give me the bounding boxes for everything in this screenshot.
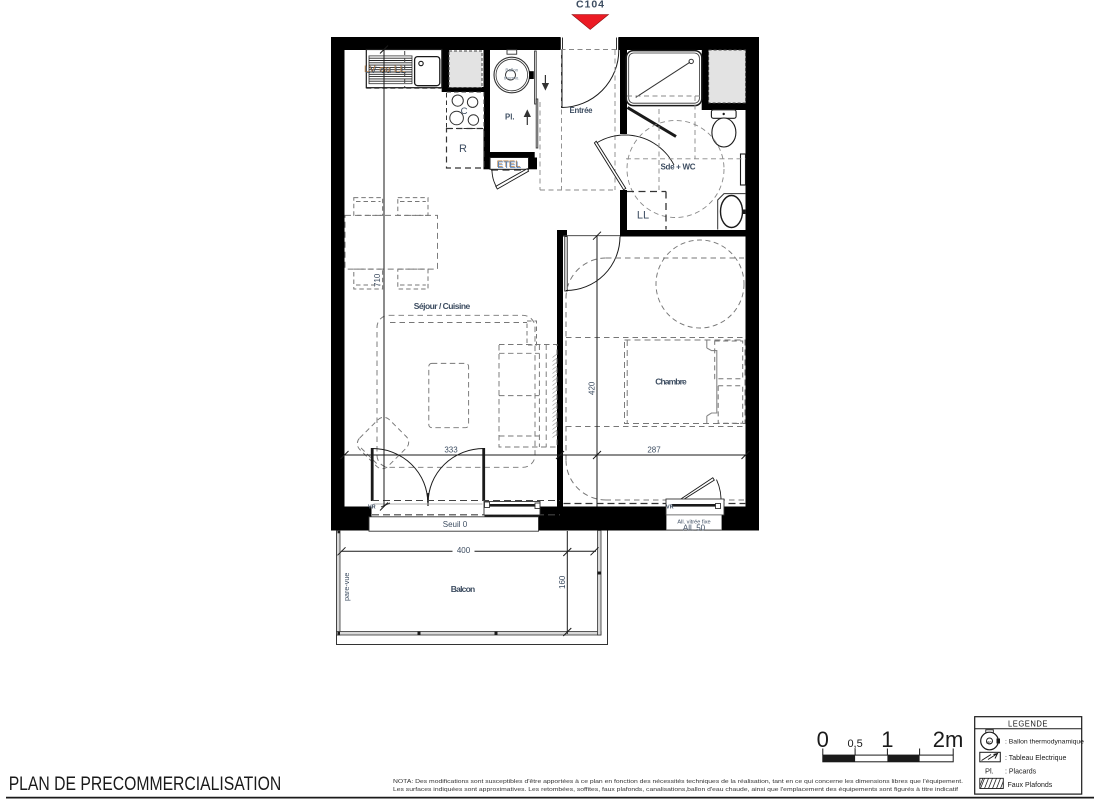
svg-text:pare-vue: pare-vue: [342, 573, 351, 601]
svg-text:Entrée: Entrée: [570, 106, 594, 115]
svg-text:: Placards: : Placards: [1005, 769, 1037, 776]
svg-text:C104: C104: [576, 0, 604, 11]
svg-text:1: 1: [881, 727, 893, 752]
svg-text:Faux Plafonds: Faux Plafonds: [1008, 782, 1053, 789]
svg-text:NOTA: Des modifications sont: NOTA: Des modifications sont susceptible…: [393, 779, 964, 785]
svg-text:2m: 2m: [933, 727, 964, 752]
svg-text:LL: LL: [637, 210, 649, 222]
svg-text:Sde + WC: Sde + WC: [661, 163, 696, 172]
svg-text:LV ou LL: LV ou LL: [365, 65, 406, 76]
svg-text:287: 287: [647, 446, 661, 455]
svg-text:160: 160: [558, 575, 567, 589]
svg-text:thermo.: thermo.: [504, 76, 520, 81]
svg-text:Chambre: Chambre: [655, 377, 687, 387]
svg-text:Balcon: Balcon: [451, 584, 476, 594]
svg-text:333: 333: [444, 446, 458, 455]
svg-text:: Tableau Electrique: : Tableau Electrique: [1005, 755, 1066, 762]
svg-text:VR: VR: [368, 505, 376, 511]
svg-text:PLAN DE PRECOMMERCIALISATION: PLAN DE PRECOMMERCIALISATION: [9, 774, 282, 795]
svg-text:0: 0: [817, 727, 829, 752]
svg-text:All. 50: All. 50: [683, 524, 706, 533]
svg-text:ETEL: ETEL: [497, 160, 521, 171]
svg-text:C: C: [461, 106, 468, 117]
svg-text:LEGENDE: LEGENDE: [1008, 718, 1048, 728]
svg-text:710: 710: [373, 273, 382, 287]
svg-text:tac: tac: [986, 740, 992, 745]
svg-text:Seuil 0: Seuil 0: [443, 520, 468, 529]
svg-text:Ballon: Ballon: [505, 68, 518, 73]
svg-text:Séjour / Cuisine: Séjour / Cuisine: [414, 301, 471, 311]
svg-text:0,5: 0,5: [847, 738, 862, 750]
svg-text:VR: VR: [666, 505, 674, 511]
svg-text:: Ballon thermodynamique: : Ballon thermodynamique: [1005, 739, 1084, 746]
svg-text:400: 400: [457, 546, 471, 555]
svg-text:Pl.: Pl.: [985, 767, 994, 776]
svg-text:R: R: [459, 143, 467, 155]
svg-text:420: 420: [588, 381, 597, 395]
svg-text:Pl.: Pl.: [505, 113, 515, 122]
svg-text:Les surfaces indiquées sont ap: Les surfaces indiquées sont approximativ…: [393, 787, 959, 793]
